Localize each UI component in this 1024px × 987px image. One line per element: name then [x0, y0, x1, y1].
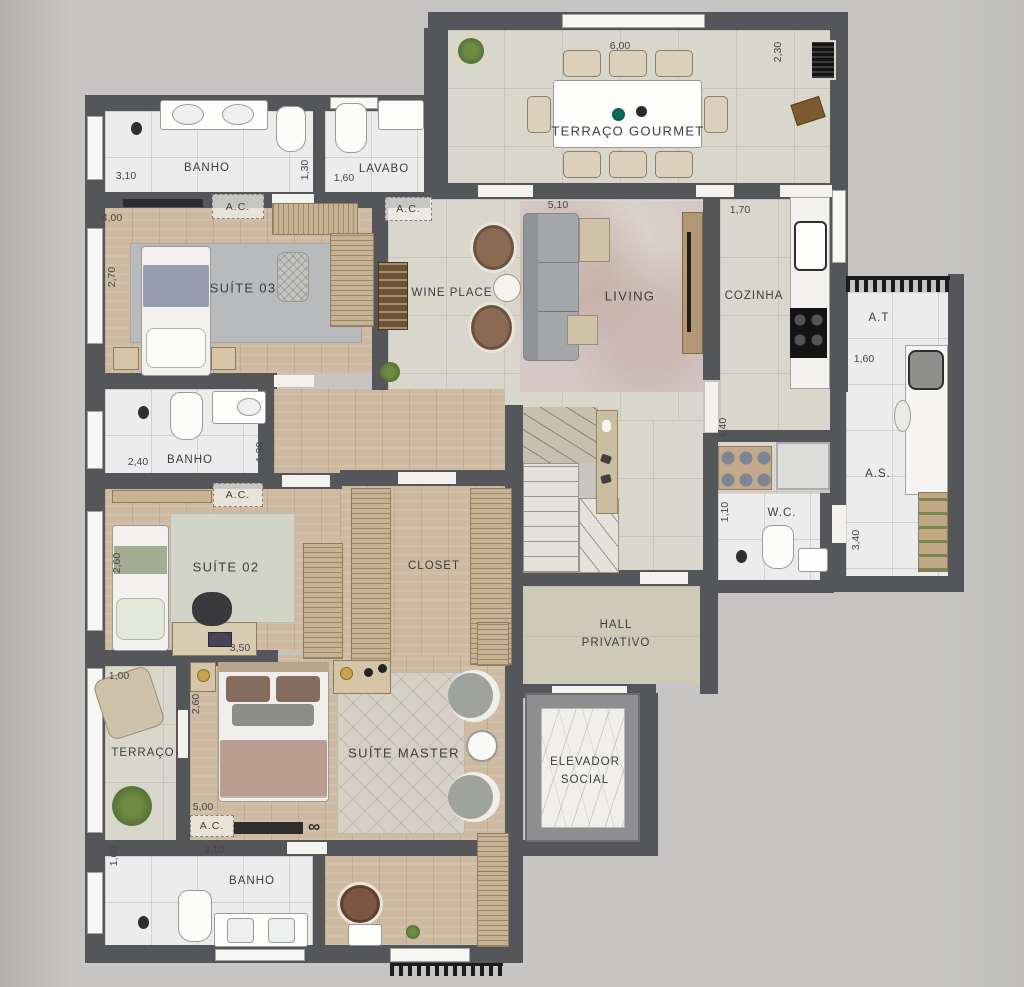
dimension-label: 1,60	[334, 172, 354, 184]
ac-label: A.C.	[226, 489, 250, 501]
door-opening	[640, 572, 688, 584]
bed-blanket	[143, 265, 209, 307]
dimension-label: 1,30	[299, 160, 311, 180]
tv-console	[123, 199, 203, 207]
room-label-hall-line2: PRIVATIVO	[582, 637, 651, 649]
desk-chair	[337, 882, 383, 926]
wardrobe	[477, 833, 509, 873]
bed-blanket	[220, 740, 327, 798]
dimension-label: 4,00	[102, 212, 122, 224]
table-bowl	[636, 106, 647, 117]
sink	[222, 104, 254, 125]
dining-chair	[609, 50, 647, 77]
wall	[424, 28, 448, 199]
lamp	[197, 669, 210, 682]
room-label-terraco-gourmet: TERRAÇO GOURMET	[551, 124, 704, 139]
wall	[830, 576, 964, 592]
sink	[237, 398, 261, 416]
wall	[700, 576, 718, 694]
washbasin	[378, 100, 424, 130]
dimension-label: 1,30	[254, 442, 266, 462]
desk-chair	[192, 592, 232, 626]
shower-head-icon	[736, 550, 747, 563]
dimension-label: 1,60	[108, 846, 120, 866]
door-opening	[780, 185, 832, 197]
room-label-hall-line1: HALL	[600, 619, 633, 631]
scale-bar	[390, 963, 503, 976]
dimension-label: 5,10	[548, 199, 568, 211]
ac-box: A.C.	[212, 194, 264, 219]
toilet	[762, 525, 794, 569]
plant	[458, 38, 484, 64]
door-opening	[478, 185, 533, 197]
room-label-suite-master: SUÍTE MASTER	[348, 746, 460, 761]
elevator-cab	[541, 708, 625, 828]
door-opening	[696, 185, 734, 197]
laundry-sink	[908, 350, 944, 390]
window	[832, 190, 846, 263]
wardrobe	[330, 233, 374, 327]
desk	[348, 924, 382, 946]
window	[562, 14, 705, 28]
console-vase	[602, 420, 611, 432]
toilet	[178, 890, 212, 942]
room-label-lavabo: LAVABO	[359, 163, 409, 175]
ac-label: A.C.	[200, 820, 224, 832]
infinity-symbol: ∞	[308, 817, 320, 837]
kitchen-sink	[794, 221, 827, 271]
dining-chair	[704, 96, 728, 133]
wardrobe	[351, 488, 391, 665]
laptop	[208, 632, 232, 647]
wall	[703, 433, 718, 593]
wall	[313, 845, 325, 945]
cooktop	[790, 308, 827, 358]
wall	[718, 430, 830, 442]
hall-privativo-floor	[523, 586, 700, 684]
utility-shelf	[918, 492, 948, 572]
dimension-label: 2,30	[772, 42, 784, 62]
dimension-label: 3,10	[116, 170, 136, 182]
floor-plan-screenshot: { "rooms": { "terraco_gourmet": "TERRAÇO…	[0, 0, 1024, 987]
wardrobe	[303, 543, 343, 659]
room-label-wine-place: WINE PLACE	[412, 287, 493, 299]
window	[87, 872, 103, 934]
dimension-label: 1,70	[730, 204, 750, 216]
pouf	[277, 252, 309, 302]
wall	[638, 693, 658, 844]
plant	[380, 362, 400, 382]
grill	[810, 40, 836, 80]
room-label-cozinha: COZINHA	[725, 290, 784, 302]
ac-box: A.C.	[190, 815, 234, 837]
wall	[703, 580, 834, 593]
pillow	[276, 676, 320, 702]
window	[390, 948, 470, 962]
dining-chair	[655, 50, 693, 77]
dimension-label: 3,40	[850, 530, 862, 550]
room-label-terraco: TERRAÇO	[111, 747, 174, 759]
room-label-elevador-line2: SOCIAL	[561, 774, 609, 786]
room-label-banho3: BANHO	[229, 875, 275, 887]
room-label-banho2: BANHO	[167, 454, 213, 466]
window	[87, 511, 103, 631]
ac-box: A.C.	[385, 197, 432, 221]
sink	[268, 918, 295, 943]
tv	[687, 232, 691, 332]
bed-pillows	[116, 598, 165, 640]
mirror-cabinet	[776, 442, 830, 490]
room-label-wc: W.C.	[768, 507, 797, 519]
door-opening	[282, 475, 330, 487]
toilet	[170, 392, 203, 440]
room-label-elevador-line1: ELEVADOR	[550, 756, 620, 768]
door-opening	[274, 375, 314, 387]
shower-head-icon	[138, 406, 149, 419]
dimension-label: 1,00	[109, 670, 129, 682]
round-mirror	[466, 730, 498, 762]
wardrobe	[477, 622, 509, 666]
dimension-label: 2,70	[106, 267, 118, 287]
wall	[703, 183, 720, 380]
dining-chair	[563, 151, 601, 178]
table-centerpiece	[612, 108, 625, 121]
armchair	[468, 302, 515, 353]
dimension-label: 2,60	[190, 694, 202, 714]
dimension-label: 3,50	[230, 642, 250, 654]
room-label-suite02: SUÍTE 02	[193, 560, 260, 575]
room-label-closet: CLOSET	[408, 560, 460, 572]
dimension-label: 3,10	[204, 844, 224, 856]
storage-cabinet	[718, 446, 772, 490]
window	[215, 949, 305, 961]
window	[87, 228, 103, 344]
dining-chair	[655, 151, 693, 178]
wardrobe	[477, 871, 509, 947]
door-opening	[178, 710, 188, 758]
dimension-label: 2,40	[128, 456, 148, 468]
wall	[948, 274, 964, 592]
pillow	[232, 704, 314, 726]
dresser	[112, 490, 212, 503]
pillow	[226, 676, 270, 702]
room-label-living: LIVING	[605, 289, 655, 304]
bed-pillows	[146, 328, 206, 368]
nightstand	[211, 347, 236, 370]
door-opening	[287, 842, 327, 854]
window	[87, 116, 103, 180]
stair-landing	[523, 407, 598, 463]
side-table	[579, 218, 610, 262]
wall	[505, 840, 658, 856]
dining-chair	[609, 151, 647, 178]
sink	[894, 400, 911, 432]
decor	[378, 664, 387, 673]
wardrobe	[272, 203, 358, 235]
room-label-as: A.S.	[865, 468, 891, 480]
round-chair-seat	[448, 673, 493, 718]
wall	[313, 95, 325, 207]
armchair	[470, 222, 517, 273]
window	[87, 411, 103, 469]
apartment-floor-plan: A.C. A.C. A.C. A.C. ∞ TERRAÇO GOURMET BA…	[0, 0, 1024, 987]
room-label-suite03: SUÍTE 03	[210, 281, 277, 296]
room-label-at: A.T	[869, 312, 890, 324]
headboard	[218, 662, 329, 672]
plant	[112, 786, 152, 826]
dimension-label: 1,60	[854, 353, 874, 365]
plant	[406, 925, 420, 939]
door-opening	[832, 505, 846, 543]
round-chair-seat	[448, 775, 493, 819]
ac-box: A.C.	[213, 483, 263, 507]
shower-head-icon	[138, 916, 149, 929]
washbasin	[798, 548, 828, 572]
toilet	[276, 106, 306, 152]
wine-rack	[378, 262, 408, 330]
room-label-banho1: BANHO	[184, 162, 230, 174]
door-opening	[398, 472, 456, 484]
sink	[227, 918, 254, 943]
staircase	[523, 463, 579, 573]
lamp	[340, 667, 353, 680]
decor	[364, 668, 373, 677]
bench	[233, 822, 303, 834]
ac-label: A.C.	[226, 201, 250, 213]
dimension-label: 5,00	[193, 801, 213, 813]
dimension-label: 6,00	[610, 40, 630, 52]
dimension-label: 1,10	[719, 502, 731, 522]
dimension-label: 4,40	[717, 418, 729, 438]
tv-panel	[682, 212, 703, 354]
sink	[172, 104, 204, 125]
side-table-round	[493, 274, 521, 302]
dimension-label: 2,60	[111, 553, 123, 573]
dining-chair	[527, 96, 551, 133]
shower-head-icon	[131, 122, 142, 135]
toilet	[335, 103, 367, 153]
hatch-marker	[846, 276, 950, 292]
dining-chair	[563, 50, 601, 77]
side-table	[567, 315, 598, 345]
ac-label: A.C.	[396, 203, 420, 215]
nightstand	[113, 347, 139, 370]
